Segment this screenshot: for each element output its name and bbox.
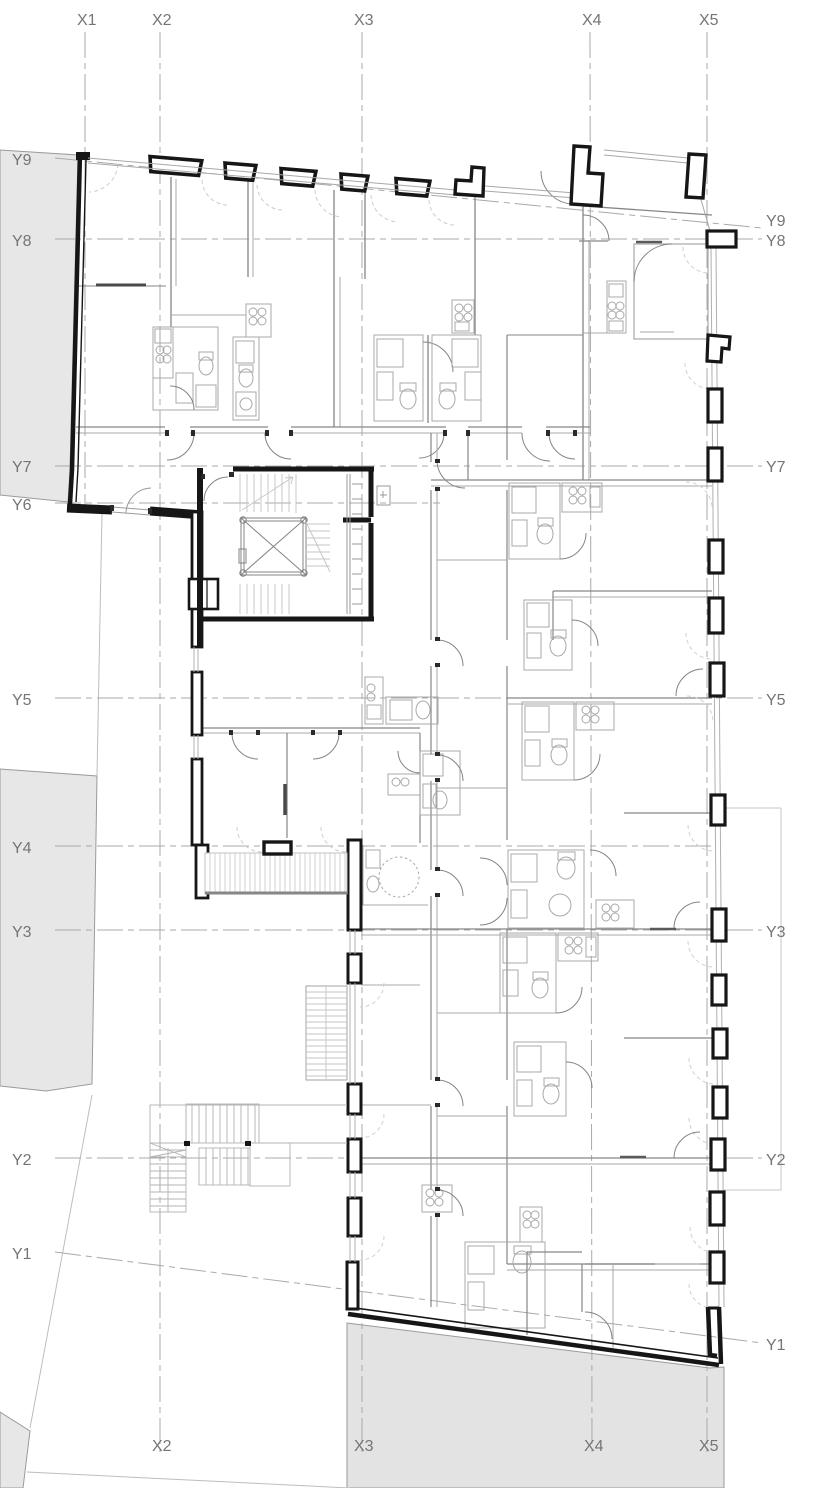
svg-text:X3: X3 xyxy=(354,1438,374,1455)
svg-text:X4: X4 xyxy=(582,12,602,29)
svg-text:X3: X3 xyxy=(354,12,374,29)
svg-text:Y7: Y7 xyxy=(766,459,786,476)
svg-text:X2: X2 xyxy=(152,1438,172,1455)
svg-text:Y9: Y9 xyxy=(766,213,786,230)
svg-text:Y6: Y6 xyxy=(12,497,32,514)
svg-text:Y9: Y9 xyxy=(12,152,32,169)
svg-text:Y3: Y3 xyxy=(766,924,786,941)
svg-text:Y5: Y5 xyxy=(12,692,32,709)
svg-text:Y1: Y1 xyxy=(12,1246,32,1263)
svg-text:Y1: Y1 xyxy=(766,1337,786,1354)
svg-text:Y4: Y4 xyxy=(12,840,32,857)
svg-text:X5: X5 xyxy=(699,1438,719,1455)
svg-text:X4: X4 xyxy=(584,1438,604,1455)
svg-text:X1: X1 xyxy=(77,12,97,29)
svg-text:Y7: Y7 xyxy=(12,459,32,476)
svg-text:Y8: Y8 xyxy=(766,233,786,250)
svg-text:Y8: Y8 xyxy=(12,233,32,250)
svg-text:Y3: Y3 xyxy=(12,924,32,941)
svg-text:Y2: Y2 xyxy=(12,1152,32,1169)
svg-text:Y2: Y2 xyxy=(766,1152,786,1169)
svg-text:Y5: Y5 xyxy=(766,692,786,709)
svg-text:X2: X2 xyxy=(152,12,172,29)
svg-text:X5: X5 xyxy=(699,12,719,29)
